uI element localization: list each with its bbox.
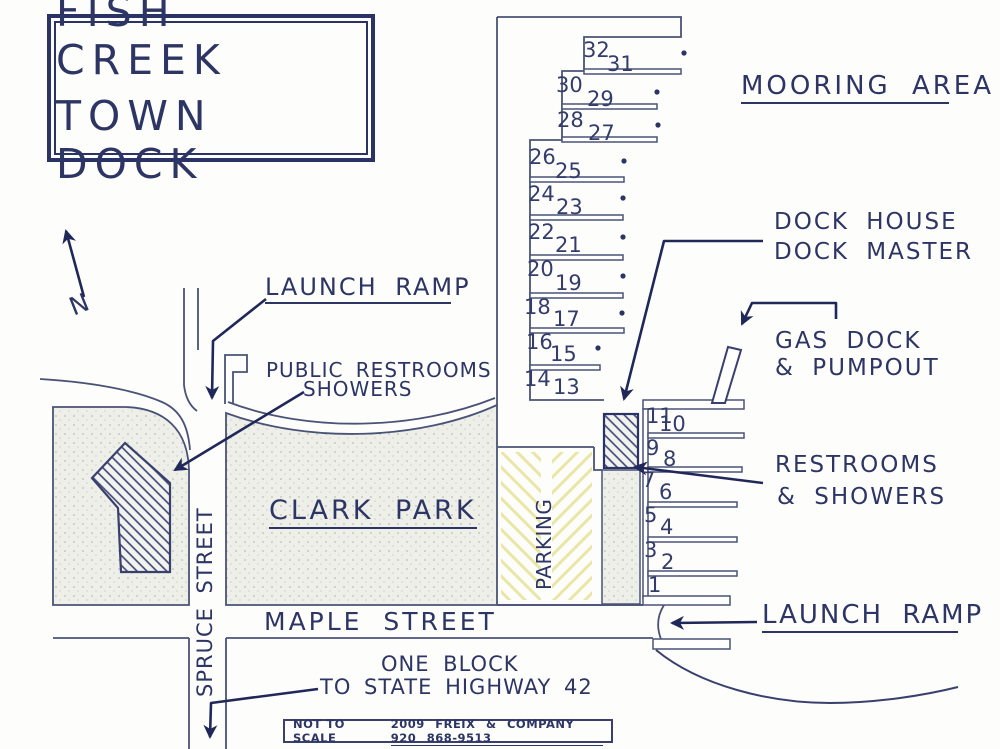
dock-house-label-line2: DOCK MASTER [774, 240, 973, 264]
launch-ramp-top-label: LAUNCH RAMP [265, 275, 451, 304]
slip-4-label: 4 [660, 515, 673, 539]
slip-24-label: 24 [528, 182, 555, 206]
slip-32-label: 32 [583, 38, 610, 62]
dock-map: FISH CREEK TOWN DOCK N LAUNCH RAMP PUBLI… [0, 0, 1000, 749]
small-jetty [225, 355, 247, 404]
slip-14-label: 14 [524, 367, 551, 391]
slip-6-label: 6 [659, 480, 672, 504]
south-pier [653, 639, 730, 649]
slip-26-label: 26 [529, 145, 556, 169]
launch-ramp-bottom-label: LAUNCH RAMP [762, 602, 958, 633]
one-block-label-line2: TO STATE HIGHWAY 42 [320, 676, 593, 698]
slip-30-label: 30 [556, 73, 583, 97]
map-title-line1: FISH CREEK [56, 0, 366, 84]
restrooms-showers-label-line1: RESTROOMS [775, 453, 939, 477]
launch-ramp-top-arrow [212, 299, 266, 398]
slip-17-label: 17 [553, 307, 580, 331]
slip-23-label: 23 [556, 195, 583, 219]
maple-street-label: MAPLE STREET [264, 609, 497, 635]
marina-bulkhead [497, 17, 681, 405]
slip-1-label: 1 [648, 573, 661, 597]
slip-31-label: 31 [607, 52, 634, 76]
public-restrooms-label-line2: SHOWERS [303, 379, 412, 400]
clark-park-label: CLARK PARK [269, 497, 477, 529]
slip-8-label: 8 [663, 447, 676, 471]
slip-7-label: 7 [642, 468, 655, 492]
slip-2-label: 2 [661, 550, 674, 574]
title-box: FISH CREEK TOWN DOCK [47, 14, 375, 162]
slip-21-label: 21 [555, 233, 582, 257]
one-block-label-line1: ONE BLOCK [381, 653, 519, 675]
gas-dock-label-line1: GAS DOCK [775, 329, 921, 353]
not-to-scale-label: NOT TO SCALE [293, 717, 365, 745]
restrooms-showers-label-line2: & SHOWERS [777, 485, 946, 509]
launch-ramp-inlet [184, 288, 198, 411]
slip-19-label: 19 [555, 271, 582, 295]
slip-9-label: 9 [646, 436, 659, 460]
slip-18-label: 18 [524, 295, 551, 319]
credit-box: NOT TO SCALE 2009 FREIX & COMPANY 920 86… [283, 719, 613, 743]
slip-13-label: 13 [553, 375, 580, 399]
dock-platform [602, 470, 640, 604]
gas-dock-label-line2: & PUMPOUT [775, 356, 940, 380]
dock-house [604, 414, 638, 468]
gas-dock-arrow [742, 303, 836, 324]
parking-label: PARKING [534, 488, 555, 590]
map-title-line2: TOWN DOCK [56, 92, 366, 188]
slip-15-label: 15 [550, 342, 577, 366]
slip-3-label: 3 [644, 538, 657, 562]
launch-ramp-bottom-arrow [672, 622, 757, 623]
slip-22-label: 22 [528, 220, 555, 244]
shoreline [656, 650, 958, 703]
slip-20-label: 20 [527, 257, 554, 281]
spruce-street-label: SPRUCE STREET [194, 497, 216, 697]
slip-11-label: 11 [646, 404, 673, 428]
mooring-area-label: MOORING AREA [741, 73, 949, 104]
slip-27-label: 27 [588, 121, 615, 145]
credit-label: 2009 FREIX & COMPANY 920 868-9513 [391, 717, 603, 746]
slip-25-label: 25 [555, 159, 582, 183]
slip-28-label: 28 [557, 108, 584, 132]
parking-hatch-right [552, 452, 592, 600]
south-ramp-curve [658, 605, 664, 639]
slip-29-label: 29 [587, 87, 614, 111]
dock-house-label-line1: DOCK HOUSE [774, 210, 958, 234]
dock-house-arrow [624, 241, 763, 399]
title-box-inner: FISH CREEK TOWN DOCK [54, 21, 368, 155]
gas-dock-pier [712, 347, 741, 403]
slip-16-label: 16 [526, 330, 553, 354]
slip-5-label: 5 [644, 503, 657, 527]
